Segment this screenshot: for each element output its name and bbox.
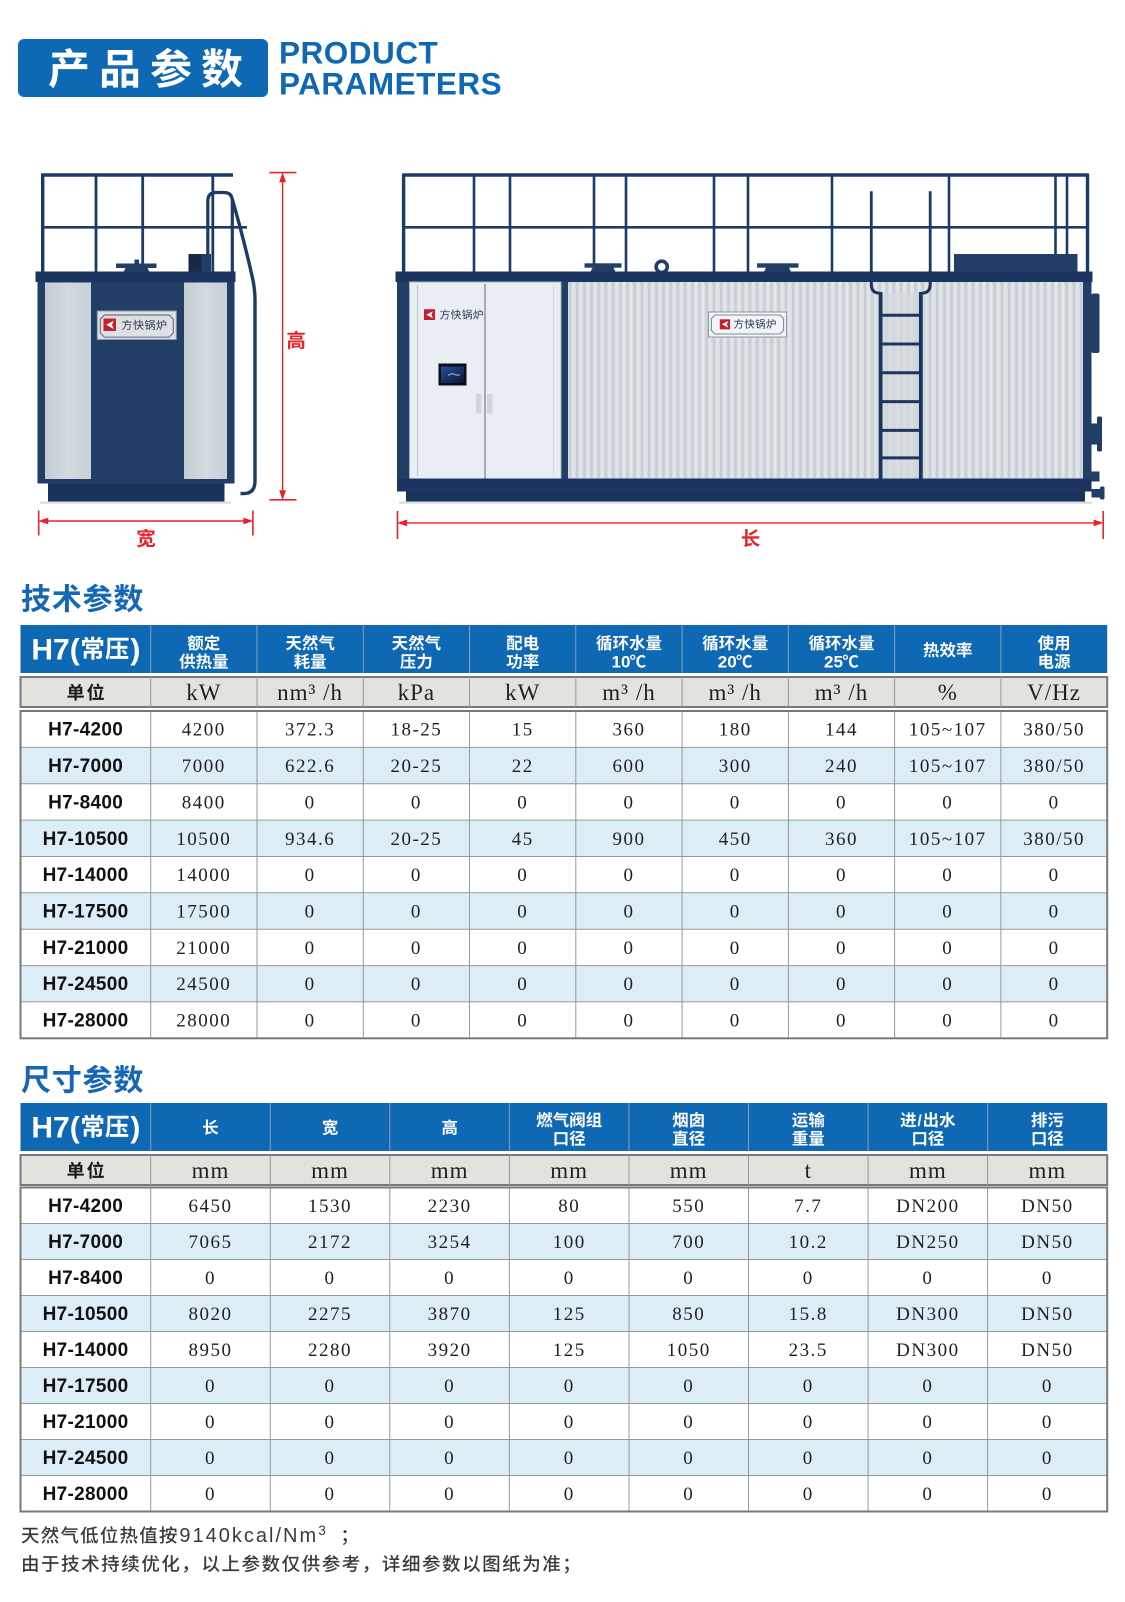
svg-text:0: 0 [836,938,847,959]
svg-text:21000: 21000 [176,938,231,959]
svg-text:DN300: DN300 [896,1340,959,1361]
svg-text:550: 550 [672,1196,705,1217]
svg-text:24500: 24500 [176,974,231,995]
svg-text:360: 360 [613,720,646,741]
svg-text:0: 0 [411,792,422,813]
svg-text:0: 0 [1042,1376,1053,1397]
svg-text:0: 0 [305,902,316,923]
svg-text:600: 600 [613,756,646,777]
svg-text:125: 125 [553,1304,586,1325]
svg-text:0: 0 [836,1011,847,1032]
svg-text:0: 0 [1049,865,1060,886]
svg-text:15: 15 [512,720,534,741]
svg-text:0: 0 [683,1448,694,1469]
svg-text:H7-28000: H7-28000 [43,1011,129,1032]
svg-text:900: 900 [613,829,646,850]
svg-text:0: 0 [325,1268,336,1289]
svg-text:0: 0 [444,1268,455,1289]
svg-text:7.7: 7.7 [794,1196,822,1217]
svg-text:0: 0 [942,938,953,959]
svg-text:380/50: 380/50 [1023,720,1085,741]
svg-text:DN50: DN50 [1021,1340,1073,1361]
svg-text:0: 0 [624,865,635,886]
svg-text:0: 0 [444,1412,455,1433]
svg-text:0: 0 [1042,1448,1053,1469]
svg-text:0: 0 [922,1412,933,1433]
svg-text:0: 0 [517,902,528,923]
svg-text:7000: 7000 [182,756,226,777]
svg-text:20: 20 [718,653,737,672]
svg-text:0: 0 [205,1376,216,1397]
svg-text:0: 0 [325,1484,336,1505]
svg-text:0: 0 [1049,1011,1060,1032]
svg-text:0: 0 [305,865,316,886]
svg-text:0: 0 [730,792,741,813]
svg-text:H7-14000: H7-14000 [43,865,129,886]
svg-text:0: 0 [942,865,953,886]
svg-text:7065: 7065 [189,1232,233,1253]
svg-text:DN50: DN50 [1021,1232,1073,1253]
svg-text:mm: mm [311,1158,349,1183]
svg-text:0: 0 [1049,902,1060,923]
svg-text:23.5: 23.5 [789,1340,828,1361]
svg-text:0: 0 [624,902,635,923]
svg-text:DN50: DN50 [1021,1304,1073,1325]
svg-text:H7-7000: H7-7000 [48,756,123,777]
svg-text:1530: 1530 [308,1196,352,1217]
svg-text:mm: mm [192,1158,230,1183]
svg-text:0: 0 [325,1412,336,1433]
svg-text:45: 45 [512,829,534,850]
svg-text:0: 0 [305,938,316,959]
svg-text:20-25: 20-25 [390,756,442,777]
svg-text:0: 0 [803,1412,814,1433]
svg-text:10: 10 [612,653,631,672]
svg-text:3920: 3920 [428,1340,472,1361]
svg-text:H7(: H7( [31,1112,79,1145]
svg-text:0: 0 [205,1484,216,1505]
svg-text:2275: 2275 [308,1304,352,1325]
svg-text:mm: mm [909,1158,947,1183]
svg-text:622.6: 622.6 [285,756,335,777]
svg-text:m³ /h: m³ /h [815,680,868,705]
svg-text:V/Hz: V/Hz [1027,680,1081,705]
svg-text:H7-21000: H7-21000 [43,1412,129,1433]
svg-text:0: 0 [730,974,741,995]
svg-text:0: 0 [803,1376,814,1397]
svg-text:mm: mm [431,1158,469,1183]
svg-text:H7-10500: H7-10500 [43,829,129,850]
svg-text:80: 80 [558,1196,580,1217]
svg-text:240: 240 [825,756,858,777]
svg-text:0: 0 [517,792,528,813]
svg-text:105~107: 105~107 [909,756,987,777]
svg-text:17500: 17500 [176,902,231,923]
svg-text:360: 360 [825,829,858,850]
svg-text:0: 0 [205,1448,216,1469]
svg-text:): ) [130,634,140,667]
svg-text:0: 0 [683,1376,694,1397]
svg-text:H7-14000: H7-14000 [43,1340,129,1361]
svg-text:0: 0 [1042,1484,1053,1505]
svg-text:0: 0 [730,865,741,886]
svg-text:25: 25 [824,653,843,672]
svg-text:0: 0 [942,902,953,923]
svg-text:934.6: 934.6 [285,829,335,850]
svg-text:0: 0 [836,792,847,813]
svg-text:0: 0 [205,1412,216,1433]
svg-text:H7-4200: H7-4200 [48,1196,123,1217]
svg-text:105~107: 105~107 [909,720,987,741]
svg-text:2230: 2230 [428,1196,472,1217]
svg-text:0: 0 [1049,938,1060,959]
svg-text:0: 0 [411,902,422,923]
svg-text:H7-17500: H7-17500 [43,1376,129,1397]
svg-text:0: 0 [803,1448,814,1469]
svg-text:850: 850 [672,1304,705,1325]
svg-text:4200: 4200 [182,720,226,741]
svg-text:0: 0 [411,865,422,886]
svg-text:DN300: DN300 [896,1304,959,1325]
svg-text:DN200: DN200 [896,1196,959,1217]
svg-text:0: 0 [836,865,847,886]
svg-text:105~107: 105~107 [909,829,987,850]
svg-text:): ) [130,1112,140,1145]
svg-text:372.3: 372.3 [285,720,335,741]
svg-text:0: 0 [803,1484,814,1505]
svg-text:H7-21000: H7-21000 [43,938,129,959]
svg-text:H7-24500: H7-24500 [43,974,129,995]
svg-text:0: 0 [1042,1268,1053,1289]
svg-text:380/50: 380/50 [1023,756,1085,777]
svg-text:m³ /h: m³ /h [602,680,655,705]
svg-text:0: 0 [1049,792,1060,813]
svg-text:0: 0 [517,974,528,995]
svg-text:6450: 6450 [189,1196,233,1217]
svg-text:14000: 14000 [176,865,231,886]
svg-text:0: 0 [942,1011,953,1032]
svg-text:0: 0 [922,1448,933,1469]
svg-text:300: 300 [719,756,752,777]
svg-text:0: 0 [517,865,528,886]
svg-text:kW: kW [505,680,540,705]
svg-text:9140kcal/Nm: 9140kcal/Nm [179,1525,318,1547]
svg-text:H7-4200: H7-4200 [48,720,123,741]
svg-text:0: 0 [411,938,422,959]
svg-text:8020: 8020 [189,1304,233,1325]
svg-text:0: 0 [624,974,635,995]
svg-text:700: 700 [672,1232,705,1253]
svg-text:/: / [917,1113,922,1130]
svg-text:0: 0 [803,1268,814,1289]
svg-text:PARAMETERS: PARAMETERS [279,66,502,102]
svg-text:0: 0 [624,1011,635,1032]
svg-text:0: 0 [922,1376,933,1397]
svg-text:0: 0 [922,1268,933,1289]
svg-text:0: 0 [730,902,741,923]
svg-text:125: 125 [553,1340,586,1361]
svg-text:0: 0 [730,1011,741,1032]
svg-text:mm: mm [1029,1158,1067,1183]
svg-text:100: 100 [553,1232,586,1253]
svg-text:450: 450 [719,829,752,850]
svg-text:mm: mm [670,1158,708,1183]
svg-text:0: 0 [564,1376,575,1397]
svg-text:0: 0 [444,1448,455,1469]
svg-text:1050: 1050 [667,1340,711,1361]
svg-text:H7-17500: H7-17500 [43,902,129,923]
svg-text:H7-8400: H7-8400 [48,1268,123,1289]
svg-text:0: 0 [683,1412,694,1433]
svg-text:2280: 2280 [308,1340,352,1361]
svg-text:8950: 8950 [189,1340,233,1361]
svg-text:m³ /h: m³ /h [708,680,761,705]
svg-text:0: 0 [411,1011,422,1032]
svg-text:380/50: 380/50 [1023,829,1085,850]
svg-text:H7(: H7( [31,634,79,667]
svg-text:0: 0 [305,792,316,813]
svg-text:0: 0 [683,1484,694,1505]
svg-text:H7-28000: H7-28000 [43,1484,129,1505]
svg-text:0: 0 [942,974,953,995]
svg-text:0: 0 [624,792,635,813]
svg-text:0: 0 [624,938,635,959]
svg-text:0: 0 [564,1268,575,1289]
svg-text:2172: 2172 [308,1232,352,1253]
svg-text:0: 0 [205,1268,216,1289]
svg-text:%: % [938,680,958,705]
svg-text:3: 3 [318,1523,326,1538]
svg-text:0: 0 [325,1376,336,1397]
svg-text:0: 0 [836,902,847,923]
svg-text:8400: 8400 [182,792,226,813]
svg-text:nm³ /h: nm³ /h [277,680,343,705]
svg-text:15.8: 15.8 [789,1304,828,1325]
svg-text:18-25: 18-25 [390,720,442,741]
svg-text:3254: 3254 [428,1232,472,1253]
svg-text:0: 0 [730,938,741,959]
svg-text:0: 0 [922,1484,933,1505]
svg-text:DN50: DN50 [1021,1196,1073,1217]
svg-text:0: 0 [305,1011,316,1032]
svg-text:H7-24500: H7-24500 [43,1448,129,1469]
svg-text:20-25: 20-25 [390,829,442,850]
svg-text:28000: 28000 [176,1011,231,1032]
svg-text:0: 0 [1042,1412,1053,1433]
svg-text:0: 0 [517,938,528,959]
svg-text:0: 0 [564,1412,575,1433]
svg-text:H7-10500: H7-10500 [43,1304,129,1325]
svg-text:kW: kW [186,680,221,705]
svg-text:0: 0 [564,1448,575,1469]
svg-text:3870: 3870 [428,1304,472,1325]
svg-text:mm: mm [550,1158,588,1183]
svg-text:kPa: kPa [398,680,436,705]
svg-text:H7-8400: H7-8400 [48,792,123,813]
svg-text:0: 0 [325,1448,336,1469]
svg-text:22: 22 [512,756,534,777]
svg-text:0: 0 [411,974,422,995]
svg-text:10500: 10500 [176,829,231,850]
svg-text:DN250: DN250 [896,1232,959,1253]
svg-text:t: t [805,1158,812,1183]
svg-text:0: 0 [942,792,953,813]
svg-text:0: 0 [305,974,316,995]
svg-text:0: 0 [683,1268,694,1289]
svg-text:180: 180 [719,720,752,741]
svg-text:144: 144 [825,720,858,741]
svg-text:10.2: 10.2 [789,1232,828,1253]
svg-text:0: 0 [444,1376,455,1397]
svg-text:0: 0 [836,974,847,995]
svg-text:0: 0 [444,1484,455,1505]
svg-text:0: 0 [564,1484,575,1505]
svg-text:H7-7000: H7-7000 [48,1232,123,1253]
svg-text:0: 0 [1049,974,1060,995]
svg-text:0: 0 [517,1011,528,1032]
